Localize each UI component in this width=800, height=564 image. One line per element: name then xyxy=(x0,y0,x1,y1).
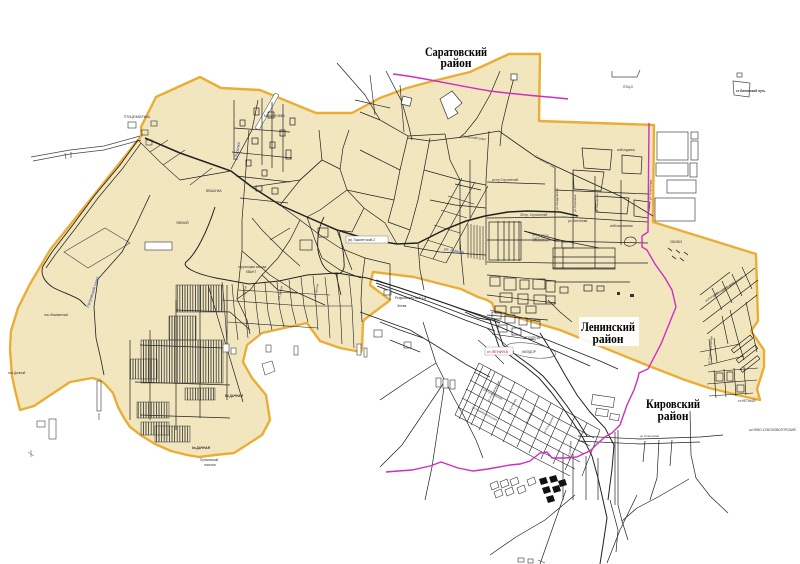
svg-text:территория завода: территория завода xyxy=(238,265,266,269)
svg-text:ул.Заводская: ул.Заводская xyxy=(595,193,599,212)
svg-text:ш.НОВО-СОКОЛОВОГОРСКИЙ: ш.НОВО-СОКОЛОВОГОРСКИЙ xyxy=(749,428,796,432)
svg-text:АТС-12: АТС-12 xyxy=(534,237,545,241)
svg-text:Рефрижерат-ный з-д: Рефрижерат-ный з-д xyxy=(395,296,426,300)
svg-text:район: район xyxy=(658,408,689,423)
svg-text:ПЭЦ-5: ПЭЦ-5 xyxy=(623,85,633,89)
svg-text:Элева: Элева xyxy=(397,304,406,308)
svg-text:39 пр. Строителей: 39 пр. Строителей xyxy=(520,213,548,217)
svg-text:ВЕШАНКА: ВЕШАНКА xyxy=(206,189,222,193)
svg-text:ЖЕЛДОР: ЖЕЛДОР xyxy=(522,350,536,354)
svg-text:пос.Дачный: пос.Дачный xyxy=(8,371,26,375)
svg-text:ст.Липовский путь: ст.Липовский путь xyxy=(736,89,765,93)
svg-text:(м).Ташкентский-2: (м).Ташкентский-2 xyxy=(348,238,375,242)
svg-text:КВАНТ: КВАНТ xyxy=(246,270,256,274)
svg-text:ИПОДРОМ: ИПОДРОМ xyxy=(524,336,541,340)
svg-text:пос.Жасминный: пос.Жасминный xyxy=(44,313,68,317)
svg-text:УВЕКИЙ: УВЕКИЙ xyxy=(176,221,189,225)
svg-text:6я.ДАЧНАЯ: 6я.ДАЧНАЯ xyxy=(192,446,211,450)
svg-text:район: район xyxy=(593,331,624,346)
svg-text:ПТИЦЕФАБРИКА: ПТИЦЕФАБРИКА xyxy=(124,115,151,119)
svg-text:ст.НЕТНЫЙ: ст.НЕТНЫЙ xyxy=(738,399,756,403)
svg-text:8я ДАЧНАЯ: 8я ДАЧНАЯ xyxy=(225,394,244,398)
svg-text:СВИ603: СВИ603 xyxy=(670,240,682,244)
svg-text:ст.ЛЕНИНА: ст.ЛЕНИНА xyxy=(487,349,508,354)
svg-text:ул.Парковая: ул.Парковая xyxy=(573,194,577,212)
svg-text:поселок: поселок xyxy=(204,463,216,467)
svg-text:ул. Антонова: ул. Антонова xyxy=(568,219,587,223)
svg-text:и/зБезымянная: и/зБезымянная xyxy=(610,224,633,228)
svg-text:район: район xyxy=(441,55,472,70)
svg-text:ул.Гвардейская: ул.Гвардейская xyxy=(555,188,559,210)
svg-text:ул.пр.Строителей: ул.пр.Строителей xyxy=(492,178,518,182)
svg-text:и/зБогданка: и/зБогданка xyxy=(617,148,635,152)
svg-text:ул.Соколовая: ул.Соколовая xyxy=(640,434,659,438)
svg-text:Пугачевский: Пугачевский xyxy=(200,458,219,462)
svg-text:МЕЩАНОВКА: МЕЩАНОВКА xyxy=(264,114,286,118)
